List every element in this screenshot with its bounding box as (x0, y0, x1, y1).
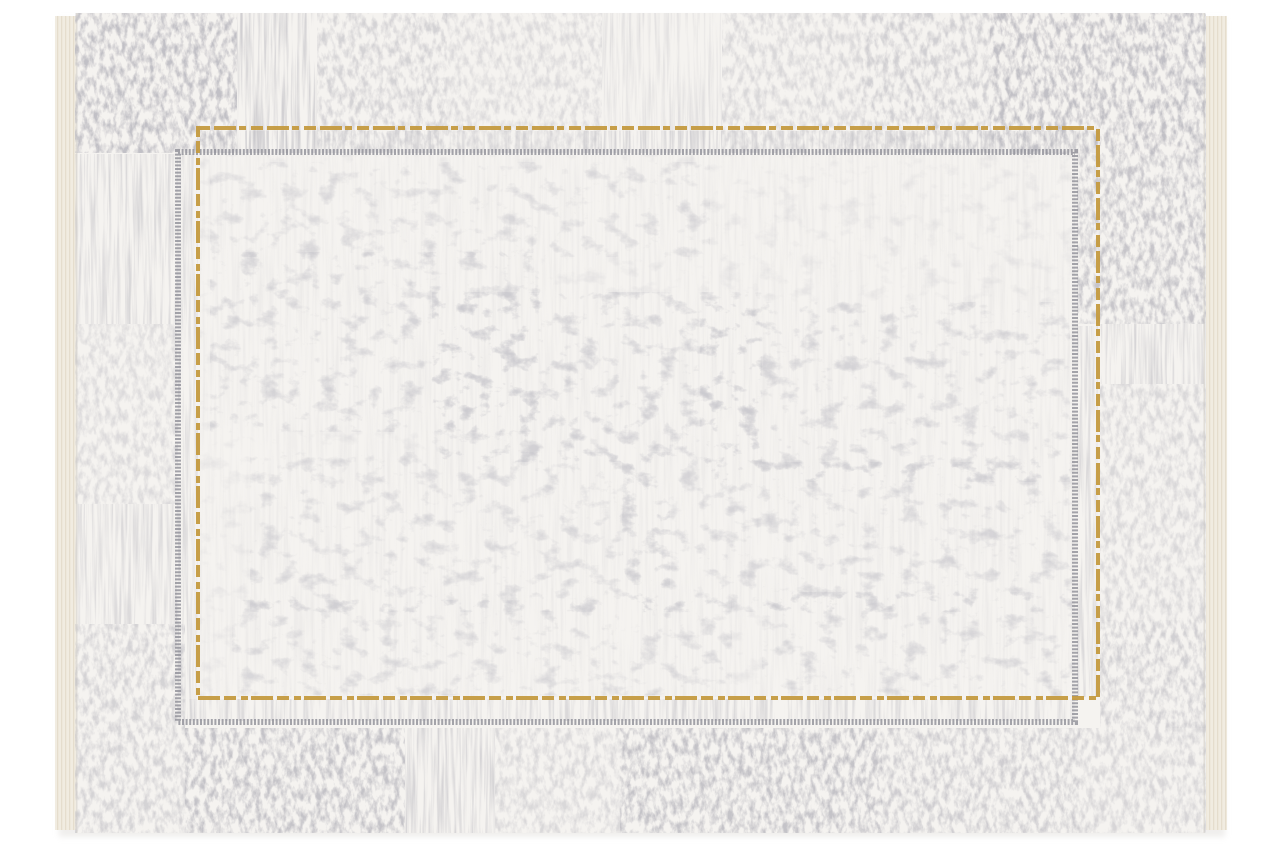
border-texture-patch (75, 324, 178, 504)
border-texture-patch (405, 728, 495, 833)
border-texture-patch (75, 504, 178, 624)
border-texture-patch (185, 728, 405, 833)
field-texture-cluster (232, 600, 732, 695)
border-texture-patch (1100, 620, 1206, 728)
border-texture-patch (178, 154, 198, 720)
field-texture-cluster (210, 162, 710, 257)
border-texture-patch (1080, 728, 1206, 833)
border-texture-patch (495, 728, 620, 833)
fringe-left (55, 16, 76, 830)
border-texture-patch (75, 624, 185, 728)
border-texture-patch (620, 728, 882, 833)
border-texture-patch (75, 728, 185, 833)
fringe-band-left (55, 16, 76, 830)
field-texture-cluster (762, 592, 1072, 697)
field-texture-cluster (700, 302, 1070, 482)
border-texture-patch (180, 699, 1075, 721)
border-texture-patch (75, 154, 178, 324)
fringe-band-right (1206, 16, 1227, 830)
field-texture (200, 155, 1075, 697)
border-texture-patch (1100, 324, 1206, 384)
border-texture-patch (882, 728, 1080, 833)
field-texture-cluster (250, 452, 670, 612)
fringe-right (1206, 16, 1227, 830)
rug-canvas (0, 0, 1280, 853)
border-texture-patch (1100, 384, 1206, 620)
border-texture-patch (1077, 326, 1098, 697)
rug-product-photo (0, 0, 1280, 853)
field-texture-cluster (622, 462, 1072, 612)
